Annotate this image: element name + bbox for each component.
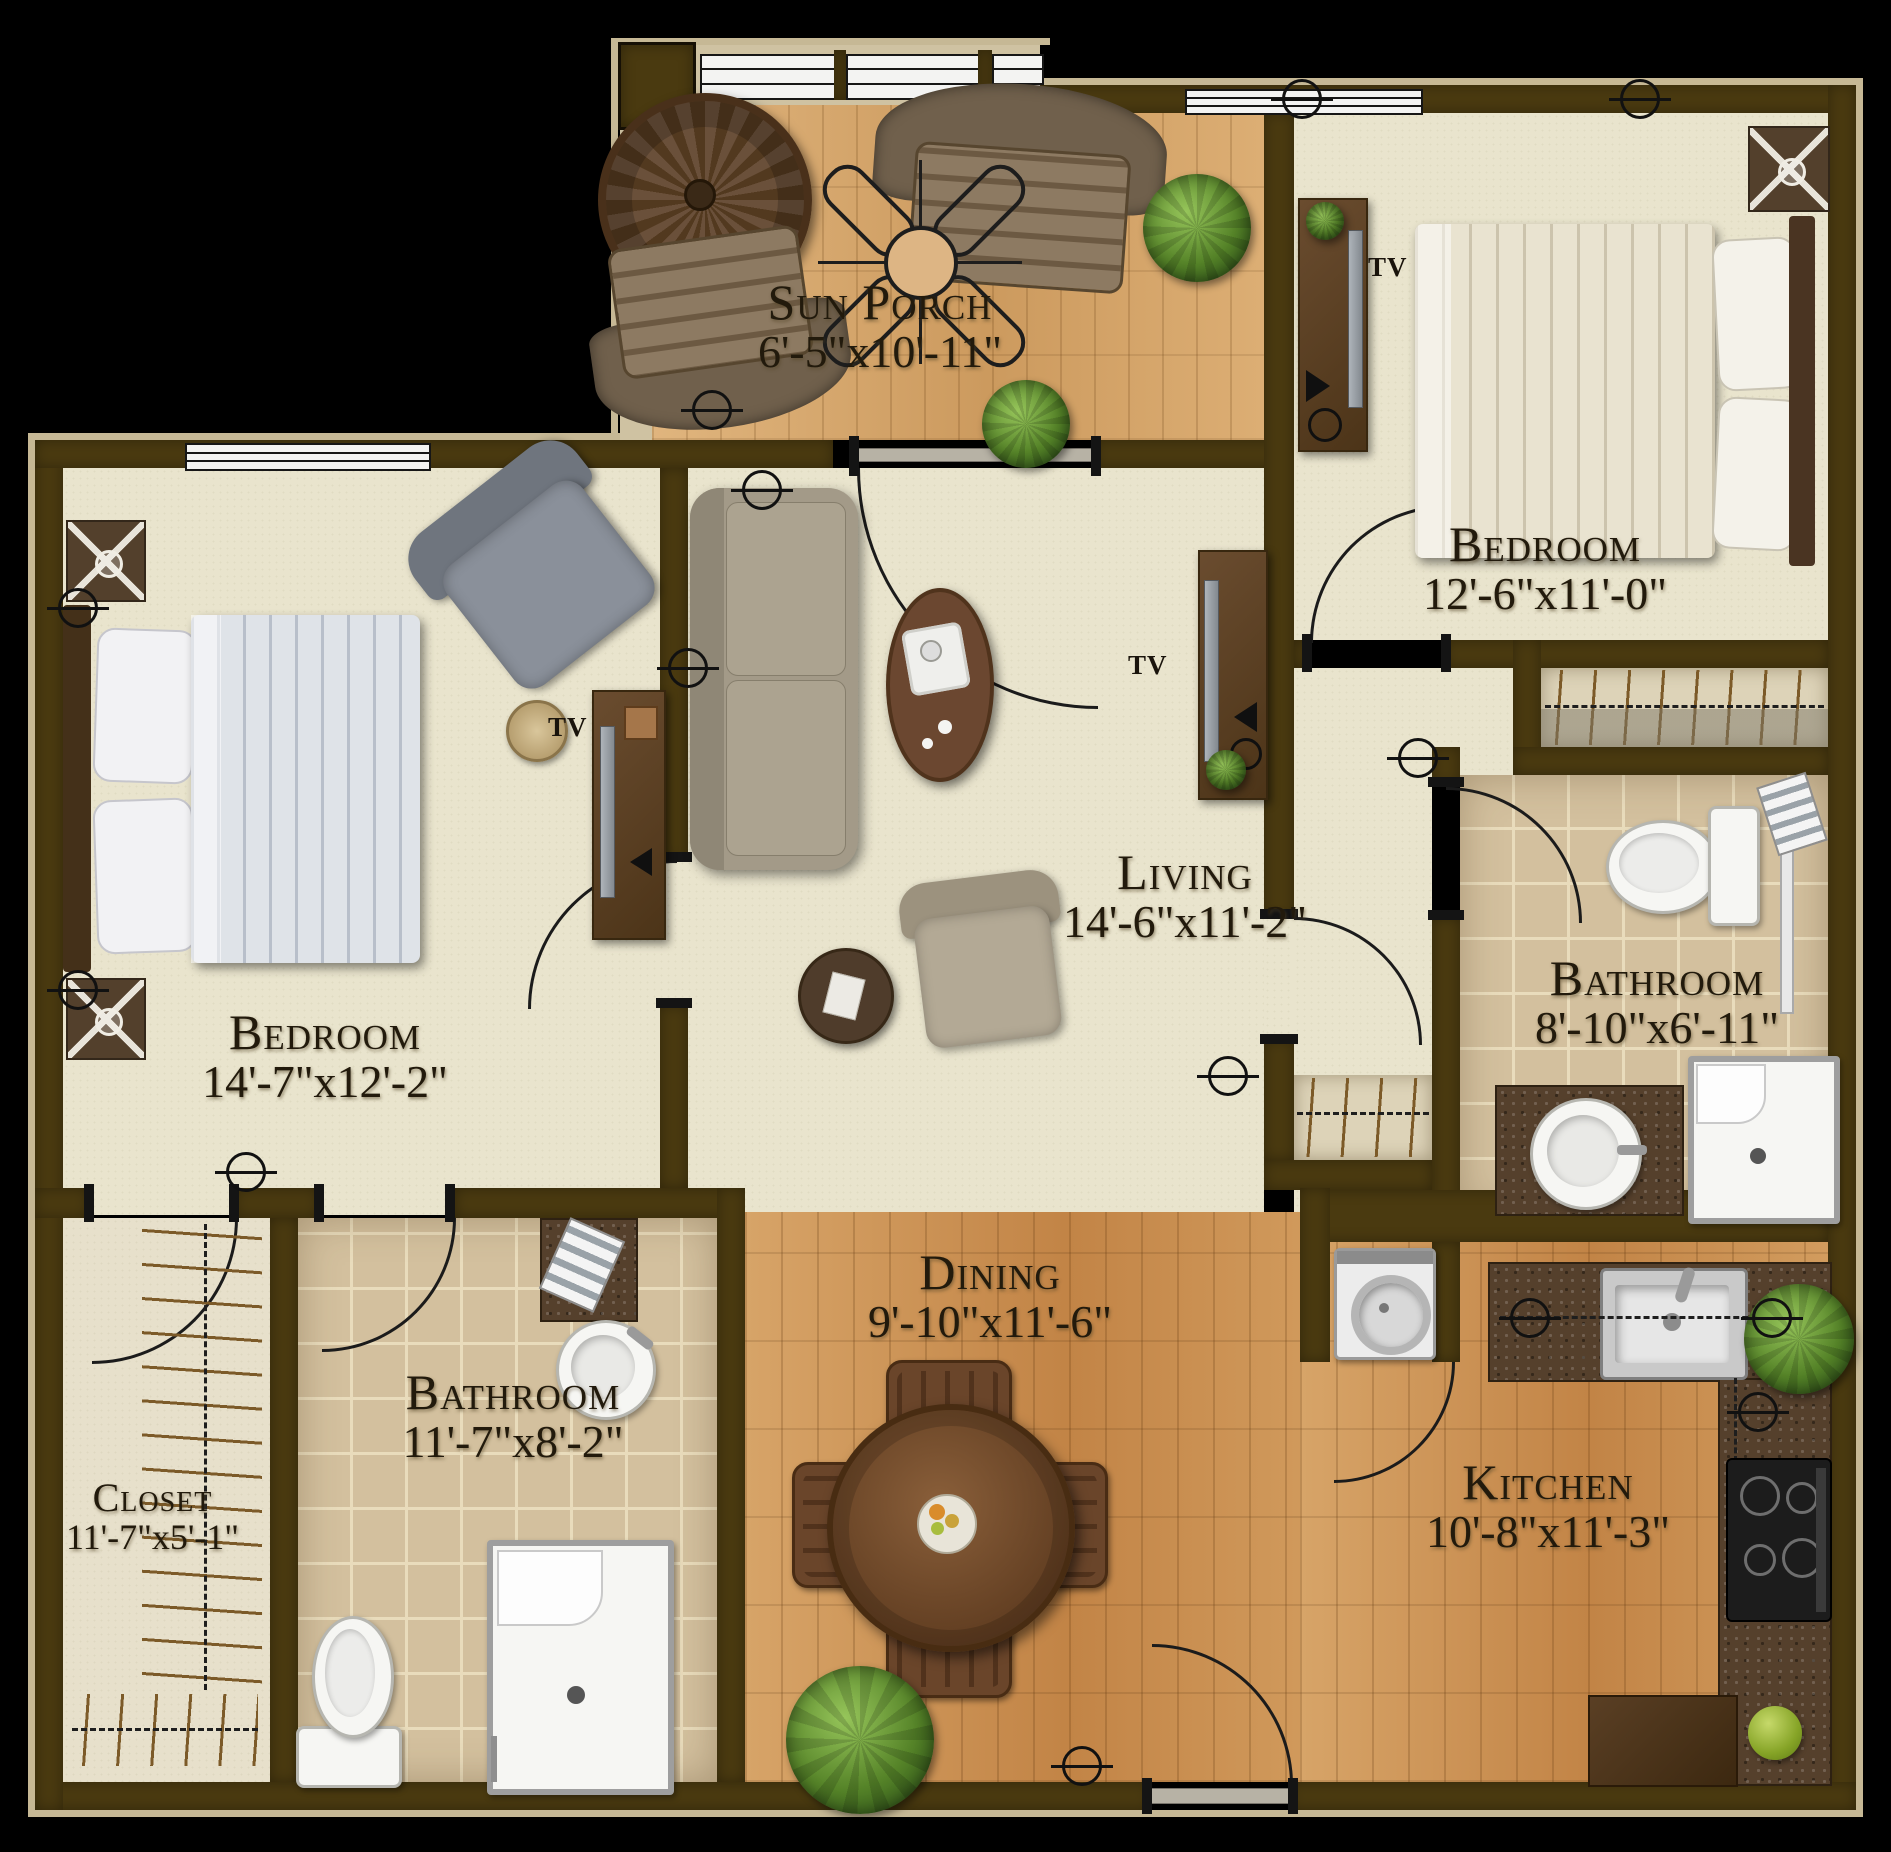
stove-controls [1816, 1468, 1826, 1612]
speaker-triangle-icon [630, 848, 652, 876]
speaker-triangle-icon [1306, 370, 1330, 402]
shower-bench [497, 1550, 603, 1626]
outlet-symbol-icon [1620, 79, 1660, 119]
tv-screen [1348, 230, 1363, 408]
door-jamb [314, 1184, 324, 1222]
fruit [929, 1504, 945, 1520]
wall-bedroom-bottom [455, 1188, 745, 1218]
sink-round [1530, 1098, 1642, 1210]
bed [1415, 216, 1815, 566]
wall-top-left [35, 440, 833, 468]
door-jamb [1428, 910, 1464, 920]
room-dims: 14'-7"x12'-2" [100, 1058, 550, 1106]
room-name: Dining [770, 1246, 1210, 1298]
upper-cabinet-line [1734, 1378, 1737, 1462]
shower-bench [1696, 1064, 1766, 1124]
speaker-triangle-icon [1234, 702, 1257, 732]
plant [982, 380, 1070, 468]
room-dims: 10'-8"x11'-3" [1328, 1508, 1768, 1556]
wall-living-hall-lower [1264, 1040, 1294, 1160]
faucet [1617, 1145, 1647, 1155]
wall-right [1828, 85, 1856, 1810]
wall-washer-right [1432, 1242, 1460, 1362]
wall-living-bedroomright [1264, 113, 1294, 917]
closet-rod [1297, 1112, 1429, 1115]
circle-symbol-icon [1308, 408, 1342, 442]
tv-label: TV [1368, 252, 1408, 283]
bed-fold [1415, 224, 1451, 558]
label-kitchen: Kitchen 10'-8"x11'-3" [1328, 1456, 1768, 1556]
door-jamb [1302, 634, 1312, 672]
label-sun-porch: Sun Porch 6'-5"x10'-11" [660, 276, 1100, 376]
fringe [1856, 78, 1863, 1817]
tv-screen [1204, 580, 1219, 762]
washer-drum [1351, 1275, 1431, 1355]
label-bedroom-left: Bedroom 14'-7"x12'-2" [100, 1006, 550, 1106]
sofa-cushion [726, 502, 846, 676]
door-jamb [849, 436, 859, 476]
closet-rod [204, 1224, 207, 1690]
closet-hangers [1297, 1078, 1429, 1157]
fringe [28, 433, 35, 1817]
grab-bar [491, 1736, 497, 1782]
label-bathroom-left: Bathroom 11'-7"x8'-2" [298, 1366, 728, 1466]
door-jamb [1428, 777, 1464, 787]
outlet-symbol-icon [1752, 1298, 1792, 1338]
window [185, 443, 431, 471]
tv-console [592, 690, 666, 940]
pillow [92, 627, 197, 784]
threshold [1150, 1788, 1292, 1804]
room-name: Living [960, 846, 1410, 898]
room-dims: 11'-7"x5'-1" [45, 1519, 260, 1556]
door-jamb [1441, 634, 1451, 672]
nightstand-with-lamp [1748, 126, 1830, 212]
room-dims: 9'-10"x11'-6" [770, 1298, 1210, 1346]
outlet-symbol-icon [692, 390, 732, 430]
room-dims: 11'-7"x8'-2" [298, 1418, 728, 1466]
outlet-symbol-icon [742, 470, 782, 510]
outlet-symbol-icon [1208, 1056, 1248, 1096]
wall-hallcloset-bottom [1264, 1160, 1432, 1190]
room-dims: 14'-6"x11'-2" [960, 898, 1410, 946]
toilet-tank [1708, 806, 1760, 926]
room-name: Sun Porch [660, 276, 1100, 328]
tv-label: TV [1128, 650, 1168, 681]
lamp-bulb [95, 550, 123, 578]
outlet-symbol-icon [58, 970, 98, 1010]
burner [1786, 1482, 1818, 1514]
washer-controls [1337, 1251, 1433, 1264]
headboard [63, 605, 91, 972]
toilet-bowl [1606, 820, 1720, 914]
plant [786, 1666, 934, 1814]
fringe [28, 1810, 1863, 1817]
window [700, 54, 838, 100]
bed [63, 605, 420, 972]
label-closet: Closet 11'-7"x5'-1" [45, 1477, 260, 1556]
kitchen-sink [1600, 1268, 1748, 1380]
plant-small [1206, 750, 1246, 790]
room-name: Closet [45, 1477, 260, 1519]
washer-agitator [1379, 1303, 1389, 1313]
outlet-symbol-icon [1062, 1746, 1102, 1786]
door-jamb [1091, 436, 1101, 476]
bed-fold [191, 615, 221, 963]
dining-table [827, 1404, 1075, 1652]
door-jamb [656, 998, 692, 1008]
plant-small [1306, 202, 1344, 240]
side-table [798, 948, 894, 1044]
outlet-symbol-icon [1398, 738, 1438, 778]
outlet-symbol-icon [1738, 1392, 1778, 1432]
door-jamb [84, 1184, 94, 1222]
fringe [1033, 78, 1863, 85]
room-name: Bedroom [1330, 518, 1760, 570]
outlet-symbol-icon [668, 648, 708, 688]
book [822, 972, 865, 1021]
wall-bedroom-bottom [235, 1188, 318, 1218]
headboard [1789, 216, 1815, 566]
room-name: Bathroom [298, 1366, 728, 1418]
window-mullion [834, 50, 846, 100]
plant [1143, 174, 1251, 282]
label-bedroom-right: Bedroom 12'-6"x11'-0" [1330, 518, 1760, 618]
wall-washer-left [1300, 1188, 1330, 1362]
shower-drain [567, 1686, 585, 1704]
toilet-bowl [312, 1616, 394, 1738]
decor-dot [922, 738, 933, 749]
wall-left [35, 440, 63, 1810]
closet-rod [72, 1728, 258, 1731]
decor-box [624, 706, 658, 740]
wall-bathright-left [1432, 918, 1460, 1212]
pillow [92, 797, 197, 954]
room-name: Kitchen [1328, 1456, 1768, 1508]
lamp-bulb [1778, 158, 1806, 186]
shower [487, 1540, 674, 1795]
toilet-seat [1619, 833, 1699, 893]
tv-label: TV [548, 712, 588, 743]
room-name: Bedroom [100, 1006, 550, 1058]
sofa-cushion [726, 680, 846, 856]
door-jamb [1260, 1034, 1298, 1044]
room-name: Bathroom [1462, 952, 1852, 1004]
sofa [690, 488, 858, 870]
sink-basin [1547, 1115, 1619, 1187]
outlet-symbol-icon [1510, 1298, 1550, 1338]
fruit [931, 1522, 944, 1535]
wall-bedroomright-bottom [1445, 640, 1828, 668]
outlet-symbol-icon [226, 1152, 266, 1192]
decor-dot [938, 720, 952, 734]
outlet-symbol-icon [1282, 79, 1322, 119]
fruit [1748, 1706, 1802, 1760]
door-jamb [445, 1184, 455, 1222]
tray-cup [920, 640, 942, 662]
wall-bottom [1290, 1782, 1856, 1810]
shower [1688, 1056, 1840, 1224]
bed-duvet [191, 615, 420, 963]
room-dims: 8'-10"x6'-11" [1462, 1004, 1852, 1052]
closet-front [1541, 668, 1828, 747]
washer [1334, 1248, 1436, 1360]
tv-screen [600, 726, 615, 898]
wall-bedroom-living [660, 1006, 688, 1188]
closet-hangers [142, 1224, 262, 1690]
label-living: Living 14'-6"x11'-2" [960, 846, 1410, 946]
kitchen-cabinet [1588, 1695, 1738, 1787]
toilet-seat [325, 1629, 375, 1717]
bed-duvet [1415, 224, 1715, 558]
wicker-table-center [684, 179, 716, 211]
label-bathroom-right: Bathroom 8'-10"x6'-11" [1462, 952, 1852, 1052]
shower-drain [1750, 1148, 1766, 1164]
wall-closet-bath [270, 1218, 298, 1782]
door-jamb [1288, 1778, 1298, 1814]
fruit [945, 1514, 959, 1528]
wall-closet-bottom [1513, 747, 1828, 775]
label-dining: Dining 9'-10"x11'-6" [770, 1246, 1210, 1346]
coffee-table [886, 588, 994, 782]
room-dims: 6'-5"x10'-11" [660, 328, 1100, 376]
room-dims: 12'-6"x11'-0" [1330, 570, 1760, 618]
floor-plan: Sun Porch 6'-5"x10'-11" Bedroom 12'-6"x1… [0, 0, 1891, 1852]
wall-bedroom-bottom [35, 1188, 88, 1218]
wall-bath-dining [717, 1188, 745, 1782]
door-jamb [1142, 1778, 1152, 1814]
outlet-symbol-icon [58, 588, 98, 628]
